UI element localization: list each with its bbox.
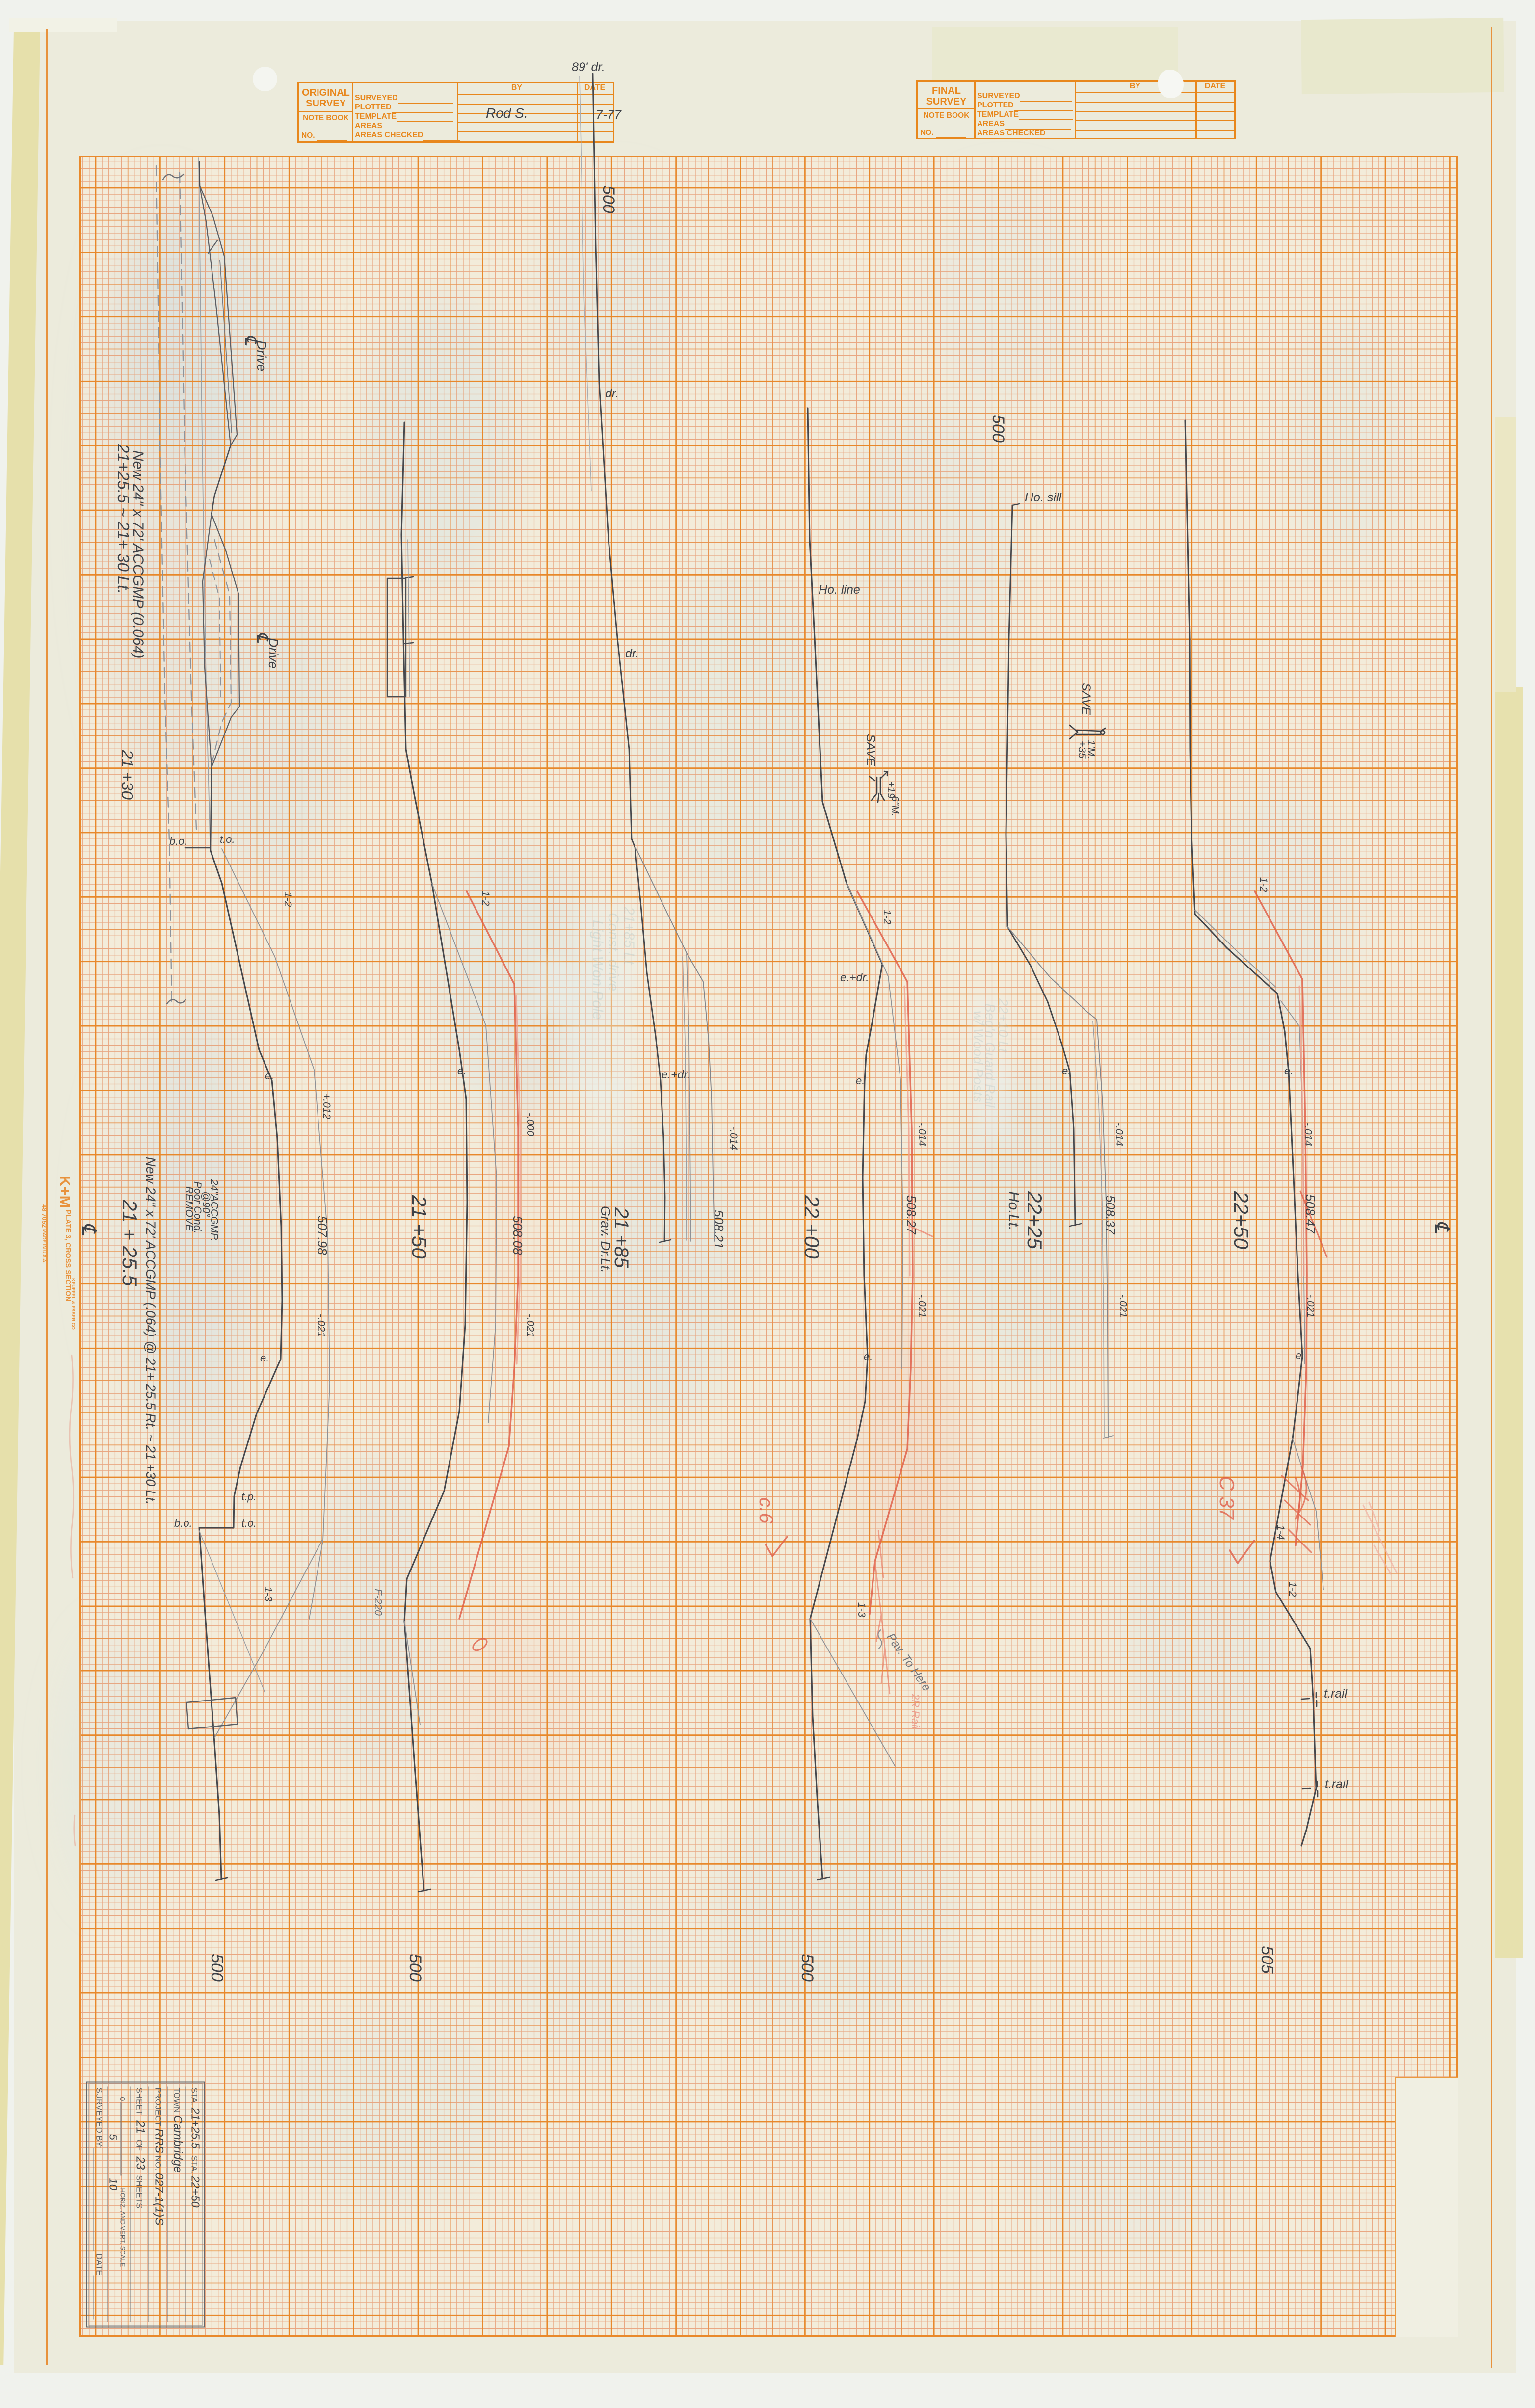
svg-text:Rod S.: Rod S.	[486, 105, 528, 121]
svg-text:F-220: F-220	[372, 1589, 384, 1616]
svg-text:b.o.: b.o.	[169, 835, 187, 847]
svg-text:508.21: 508.21	[712, 1210, 726, 1249]
svg-text:Ho.Lt.: Ho.Lt.	[1006, 1191, 1022, 1230]
svg-text:Pav. To Here: Pav. To Here	[884, 1631, 933, 1694]
svg-text:e.: e.	[265, 1070, 274, 1082]
svg-text:Light Won Pole: Light Won Pole	[589, 920, 606, 1020]
svg-text:1-2: 1-2	[1287, 1582, 1298, 1597]
svg-text:507.98: 507.98	[315, 1216, 330, 1255]
svg-text:SAVE: SAVE	[864, 734, 877, 766]
svg-text:-.000: -.000	[525, 1113, 536, 1136]
svg-text:-.014: -.014	[1113, 1123, 1125, 1146]
svg-text:Ho. line: Ho. line	[819, 583, 860, 597]
svg-text:1-2: 1-2	[1258, 877, 1269, 892]
svg-text:t.o.: t.o.	[241, 1517, 257, 1529]
svg-text:21 + 25.5: 21 + 25.5	[118, 1199, 141, 1286]
svg-text:6"M.: 6"M.	[889, 796, 900, 816]
svg-text:t.rail: t.rail	[1324, 1687, 1348, 1701]
svg-text:-.021: -.021	[916, 1294, 927, 1318]
svg-text:-.021: -.021	[1117, 1294, 1129, 1318]
svg-text:-.021: -.021	[525, 1314, 536, 1337]
svg-text:21 +50: 21 +50	[408, 1195, 431, 1259]
svg-text:w/ Wood Posts: w/ Wood Posts	[971, 1011, 986, 1102]
svg-text:+35: +35	[1076, 741, 1087, 759]
svg-text:b.o.: b.o.	[174, 1517, 192, 1529]
svg-text:e.: e.	[856, 1074, 865, 1087]
svg-text:℄: ℄	[78, 1223, 100, 1236]
svg-text:2R Rail: 2R Rail	[909, 1693, 922, 1729]
svg-text:500: 500	[599, 185, 618, 213]
svg-text:-.014: -.014	[916, 1123, 927, 1146]
svg-text:℄: ℄	[1431, 1221, 1453, 1234]
svg-text:t.p.: t.p.	[241, 1491, 257, 1503]
svg-text:89' dr.: 89' dr.	[572, 60, 605, 74]
svg-text:22 +00: 22 +00	[800, 1195, 823, 1259]
svg-text:505: 505	[1258, 1946, 1276, 1974]
svg-text:New 24" x 72' ACCGMP (.064) @: New 24" x 72' ACCGMP (.064) @ 21+ 25.5 R…	[143, 1157, 158, 1505]
svg-text:e.+dr.: e.+dr.	[662, 1068, 690, 1081]
svg-text:+.012: +.012	[321, 1093, 332, 1119]
svg-text:Const. drive: Const. drive	[605, 913, 621, 991]
svg-text:22+50: 22+50	[1230, 1191, 1253, 1250]
svg-text:1-2: 1-2	[881, 910, 893, 925]
svg-text:1-2: 1-2	[282, 892, 293, 907]
svg-text:500: 500	[798, 1954, 817, 1982]
svg-text:e.: e.	[1296, 1349, 1304, 1361]
svg-text:7-77: 7-77	[596, 107, 622, 122]
svg-text:1-3: 1-3	[263, 1587, 274, 1602]
svg-text:1-3: 1-3	[856, 1602, 867, 1618]
svg-text:-.021: -.021	[1305, 1294, 1316, 1318]
svg-text:1-4: 1-4	[1275, 1525, 1286, 1540]
svg-text:C 37: C 37	[1216, 1476, 1239, 1520]
svg-text:500: 500	[406, 1954, 424, 1982]
svg-text:1-2: 1-2	[480, 891, 491, 906]
svg-text:21 +85: 21 +85	[610, 1207, 632, 1268]
svg-text:e.+dr.: e.+dr.	[840, 971, 869, 984]
svg-text:Drive: Drive	[254, 340, 269, 371]
svg-text:dr.: dr.	[625, 647, 639, 660]
svg-text:New 24" x 72' ACCGMP (0.064): New 24" x 72' ACCGMP (0.064)	[130, 450, 146, 658]
svg-text:21+25.5 ~ 21+ 30 Lt.: 21+25.5 ~ 21+ 30 Lt.	[114, 444, 132, 594]
svg-text:508.27: 508.27	[904, 1195, 919, 1235]
svg-text:dr.: dr.	[605, 387, 619, 400]
svg-text:-.014: -.014	[728, 1126, 739, 1150]
svg-text:21+85 Lt: 21+85 Lt	[621, 906, 637, 965]
svg-text:-.014: -.014	[1302, 1123, 1314, 1146]
svg-text:22+25: 22+25	[1023, 1191, 1046, 1250]
svg-text:t.o.: t.o.	[220, 833, 235, 845]
svg-text:e.: e.	[864, 1350, 873, 1362]
svg-text:-.021: -.021	[316, 1314, 327, 1337]
svg-text:508.47: 508.47	[1303, 1194, 1318, 1234]
svg-text:508.37: 508.37	[1103, 1195, 1118, 1235]
svg-text:21 +30: 21 +30	[118, 749, 136, 800]
svg-text:c.6: c.6	[755, 1497, 777, 1524]
svg-text:508.08: 508.08	[510, 1216, 525, 1255]
svg-text:Drive: Drive	[266, 638, 281, 669]
svg-text:SAVE: SAVE	[1079, 683, 1093, 715]
svg-text:e.: e.	[1284, 1065, 1293, 1077]
svg-text:t.rail: t.rail	[1325, 1778, 1349, 1791]
svg-text:e.: e.	[1062, 1065, 1071, 1077]
svg-text:Ho. sill: Ho. sill	[1025, 491, 1062, 504]
svg-text:500: 500	[208, 1954, 226, 1982]
svg-text:Grav. Dr.Lt.: Grav. Dr.Lt.	[598, 1206, 613, 1273]
svg-text:e.: e.	[457, 1065, 466, 1077]
svg-text:REMOVE: REMOVE	[184, 1186, 195, 1231]
svg-text:e.: e.	[260, 1352, 269, 1364]
svg-text:500: 500	[989, 415, 1007, 443]
